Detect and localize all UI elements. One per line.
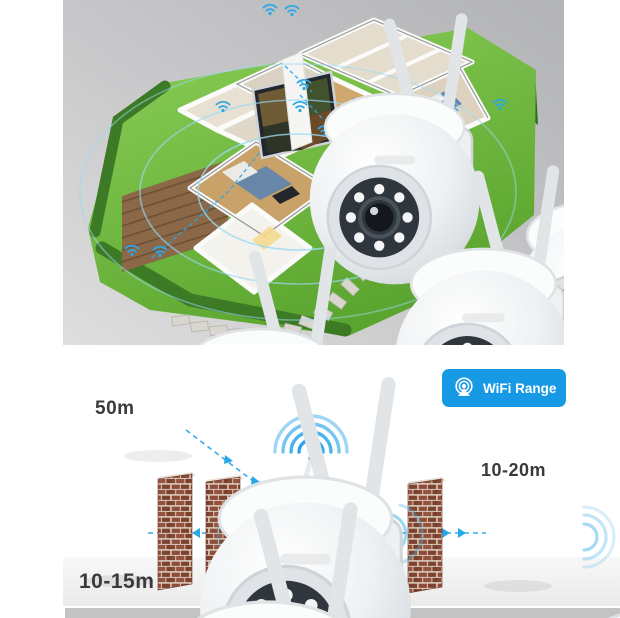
ptz-camera-50m xyxy=(200,384,411,618)
product-illustration: 50m 10-15m 10-20m WiFi Range xyxy=(0,0,620,618)
wifi-range-badge: WiFi Range xyxy=(442,369,566,407)
range-label-10-15m: 10-15m xyxy=(79,571,154,592)
smart-home-scene xyxy=(63,0,620,527)
scene-graphics xyxy=(0,0,620,618)
wifi-broadcast-icon xyxy=(452,376,476,400)
brick-wall-3 xyxy=(408,477,446,593)
range-label-10-20m: 10-20m xyxy=(481,461,546,479)
brick-wall-1 xyxy=(158,472,196,590)
wifi-range-badge-label: WiFi Range xyxy=(483,381,556,396)
range-label-50m: 50m xyxy=(95,399,135,418)
